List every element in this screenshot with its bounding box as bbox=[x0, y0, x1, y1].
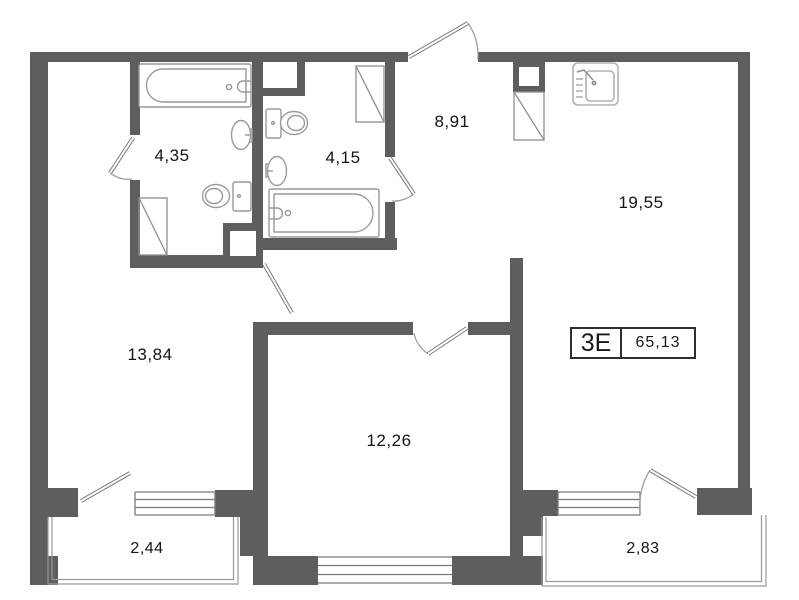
room-area-label-balcony-left: 2,44 bbox=[130, 540, 163, 558]
window-icon bbox=[558, 492, 640, 515]
unit-info-box: 3Е 65,13 bbox=[570, 327, 696, 359]
toilet-icon bbox=[266, 109, 308, 138]
wall-outer-top-left bbox=[32, 52, 408, 62]
wall-duct-bottom bbox=[263, 88, 305, 96]
pier-bedroom-left bbox=[47, 488, 78, 517]
balcony-right-door-swing-icon bbox=[640, 470, 696, 514]
wall-outer-left bbox=[30, 52, 48, 560]
sink-icon bbox=[232, 121, 253, 150]
room-area-label-bathroom-2: 4,15 bbox=[325, 148, 360, 168]
room2-door-swing-icon bbox=[414, 328, 467, 354]
corner-shower-icon bbox=[139, 198, 167, 255]
wall-outer-top-right bbox=[478, 52, 750, 62]
bedroom-door-swing-icon bbox=[264, 264, 292, 313]
pier-bedroom-right bbox=[215, 490, 268, 517]
pier-living-left bbox=[510, 490, 558, 516]
duct-shaft-inner bbox=[519, 67, 539, 86]
unit-total-area: 65,13 bbox=[622, 329, 694, 357]
pier-living-right bbox=[697, 488, 752, 515]
room-area-label-hallway: 8,91 bbox=[434, 112, 469, 132]
bathroom1-door-swing-icon bbox=[110, 138, 133, 179]
room-area-label-room-2: 12,26 bbox=[366, 431, 411, 451]
duct-shaft-inner bbox=[230, 231, 256, 256]
bathroom2-door-swing-icon bbox=[390, 158, 414, 201]
room-area-label-bathroom-1: 4,35 bbox=[154, 146, 189, 166]
room-area-label-balcony-right: 2,83 bbox=[626, 540, 659, 558]
sink-icon bbox=[266, 157, 287, 186]
wall-outer-left-foot bbox=[30, 556, 58, 585]
washing-machine-icon bbox=[514, 92, 544, 140]
window-icon bbox=[135, 492, 215, 515]
entrance-door-swing-icon bbox=[409, 23, 478, 60]
unit-type-label: 3Е bbox=[572, 329, 622, 357]
plan-symbols bbox=[0, 0, 799, 600]
toilet-icon bbox=[203, 182, 252, 211]
pier-bay-left-connector bbox=[240, 515, 268, 556]
wall-bathroom2-right-upper bbox=[385, 62, 395, 157]
room-area-label-kitchen-living: 19,55 bbox=[618, 193, 663, 213]
wall-outer-right bbox=[738, 52, 750, 488]
wall-bathroom1-bottom bbox=[130, 255, 223, 268]
bathtub-icon bbox=[139, 64, 251, 107]
wall-bathroom2-bottom bbox=[258, 238, 397, 250]
corner-shower-icon bbox=[356, 66, 384, 122]
pier-bay-left-foot bbox=[253, 556, 318, 585]
pier-bay-right-connector bbox=[523, 516, 543, 536]
floor-plan: 4,35 4,15 8,91 19,55 13,84 12,26 2,44 2,… bbox=[0, 0, 799, 600]
window-icon bbox=[318, 557, 452, 583]
pier-bay-right-foot bbox=[452, 556, 543, 585]
room-area-label-bedroom: 13,84 bbox=[127, 345, 172, 365]
kitchen-sink-icon bbox=[573, 63, 618, 105]
wall-room2-top-left bbox=[253, 322, 413, 335]
wall-bedroom-room2 bbox=[253, 322, 268, 517]
bathtub-icon bbox=[269, 189, 379, 237]
balcony-left-door-swing-icon bbox=[81, 473, 130, 501]
wall-bathroom1-left-upper bbox=[130, 62, 140, 135]
